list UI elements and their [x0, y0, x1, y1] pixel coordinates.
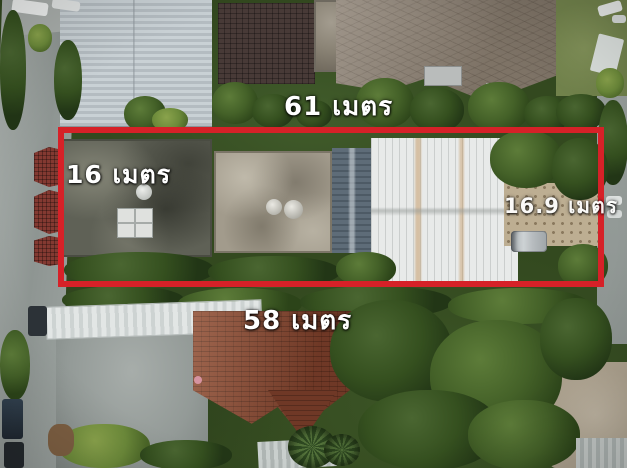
tree: [0, 330, 30, 400]
tree: [212, 82, 258, 124]
tree: [54, 40, 82, 120]
house-annex-roof: [424, 66, 462, 86]
dark-tile-roof-top: [218, 3, 315, 84]
parked-car-dark-1: [28, 306, 47, 336]
measurement-label-right: 16.9 เมตร: [504, 196, 618, 217]
pink-umbrella-dot: [194, 376, 202, 384]
measurement-label-bottom: 58 เมตร: [243, 308, 352, 334]
tree: [468, 400, 580, 468]
parked-car-dark-2: [2, 399, 23, 439]
gray-roof-bottom-right-corner: [576, 438, 627, 468]
measurement-label-left: 16 เมตร: [66, 162, 171, 187]
dirt-patch: [48, 424, 74, 456]
tree: [596, 68, 624, 98]
parked-car-dark-3: [4, 442, 24, 468]
measurement-label-top: 61 เมตร: [284, 94, 393, 120]
tree: [28, 24, 52, 52]
parked-car-top-right-2: [612, 15, 626, 23]
palm-plant-2: [324, 434, 360, 466]
tree: [410, 88, 464, 132]
tree: [540, 298, 612, 380]
tree: [0, 10, 26, 130]
tree: [140, 440, 232, 468]
tree: [468, 82, 530, 132]
aerial-photo: 61 เมตร 16 เมตร 16.9 เมตร 58 เมตร: [0, 0, 627, 468]
